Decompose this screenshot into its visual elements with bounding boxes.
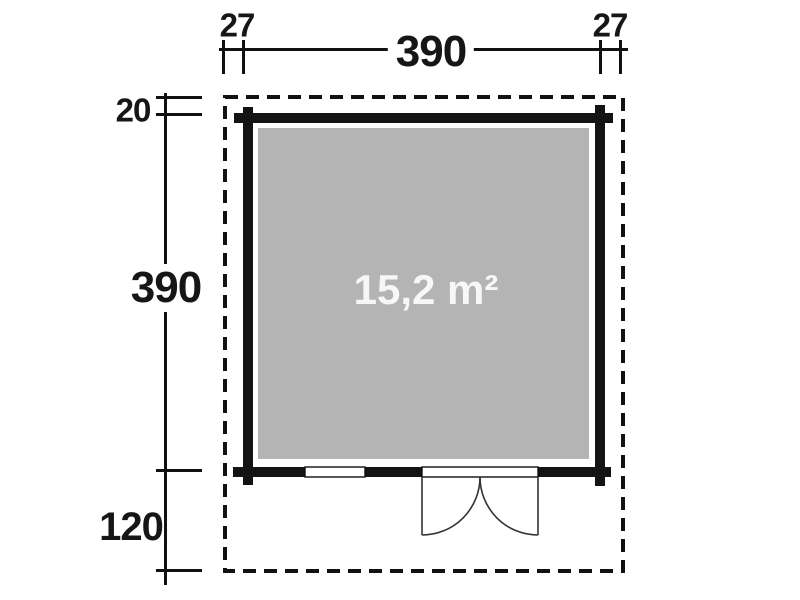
wall-left	[243, 107, 253, 485]
dim-side-bottom-depth: 120	[99, 507, 163, 547]
dim-top-left-overhang: 27	[220, 9, 255, 42]
wall-top	[234, 113, 613, 123]
door-swing-arc-right	[480, 477, 538, 535]
floor-area-label: 15,2 m²	[354, 269, 499, 311]
door-opening	[422, 467, 538, 477]
window-symbol	[305, 467, 365, 477]
floor-plan: 27 390 27 20 390 120 15,2 m²	[0, 0, 800, 600]
dim-side-height: 390	[123, 264, 209, 312]
wall-right	[595, 105, 605, 486]
dim-top-width: 390	[388, 28, 474, 76]
dim-side-top-offset: 20	[116, 94, 151, 127]
dim-top-right-overhang: 27	[593, 9, 628, 42]
door-swing-arc-left	[422, 477, 480, 535]
